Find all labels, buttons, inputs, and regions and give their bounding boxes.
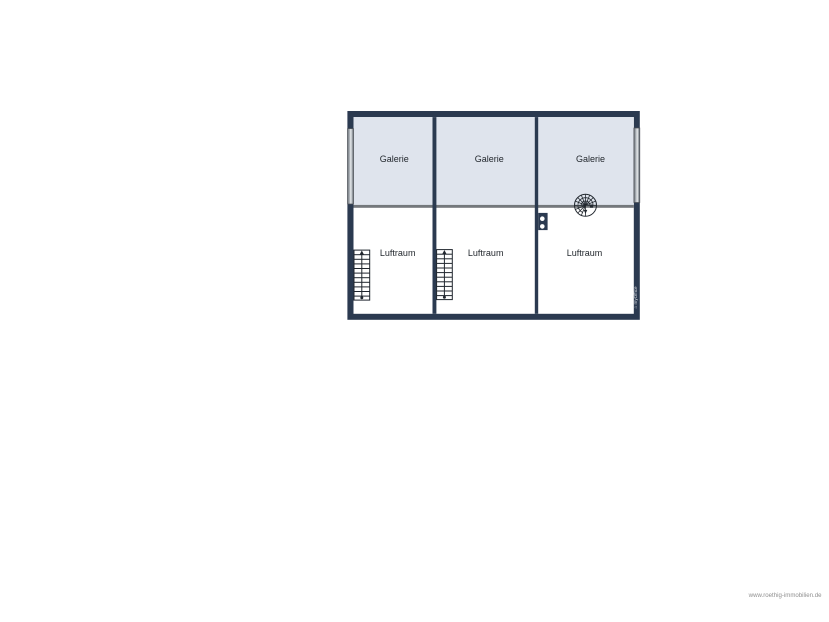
svg-text:Luftraum: Luftraum — [380, 248, 416, 258]
svg-text:www.roethig-immobilien.de: www.roethig-immobilien.de — [748, 592, 822, 599]
svg-text:Galerie: Galerie — [475, 154, 504, 164]
svg-text:Galerie: Galerie — [380, 154, 409, 164]
svg-text:Luftraum: Luftraum — [468, 248, 504, 258]
svg-text:Luftraum: Luftraum — [567, 248, 603, 258]
svg-text:⌂ myOffice: ⌂ myOffice — [633, 286, 638, 309]
svg-text:Galerie: Galerie — [576, 154, 605, 164]
